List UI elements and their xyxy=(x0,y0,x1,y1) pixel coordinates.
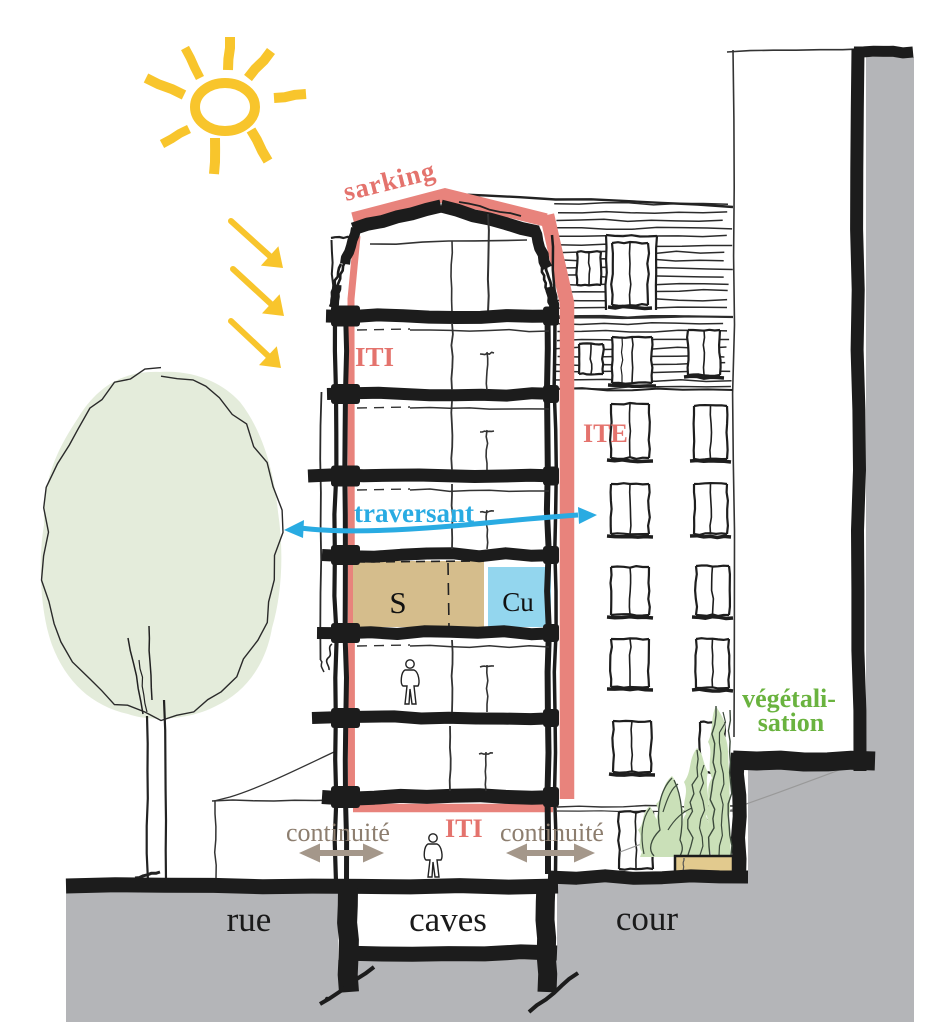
svg-text:Cu: Cu xyxy=(502,587,534,617)
svg-text:traversant: traversant xyxy=(354,498,474,528)
svg-text:cour: cour xyxy=(616,899,679,938)
svg-text:continuité: continuité xyxy=(286,818,390,847)
svg-text:S: S xyxy=(389,585,406,620)
svg-text:sation: sation xyxy=(758,708,825,737)
svg-text:continuité: continuité xyxy=(500,818,604,847)
svg-text:ITE: ITE xyxy=(583,419,628,448)
svg-text:caves: caves xyxy=(409,900,487,939)
svg-text:ITI: ITI xyxy=(445,814,483,843)
svg-text:rue: rue xyxy=(227,900,272,939)
svg-text:ITI: ITI xyxy=(355,342,394,372)
